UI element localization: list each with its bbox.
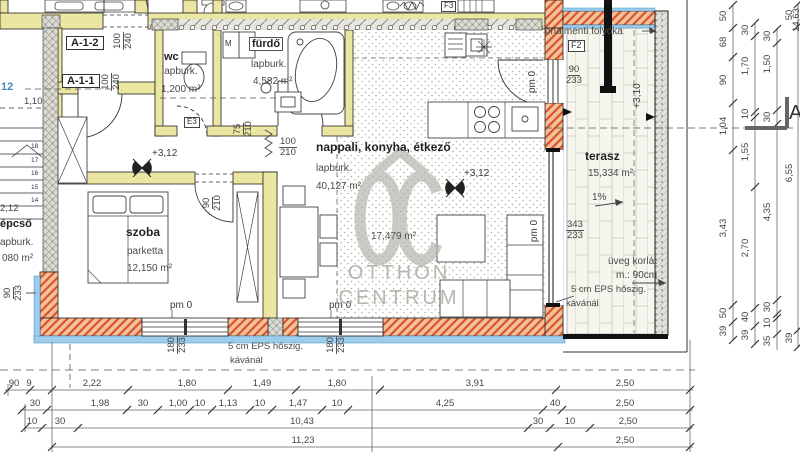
opening-window2: 180233 <box>325 336 348 354</box>
dim-right-c3-4: 30 <box>763 302 773 313</box>
dim-bottom-row3-1: 30 <box>55 417 66 427</box>
dim-right-c2-2: 10 <box>741 109 751 120</box>
dim-right-c4-2: 39 <box>785 333 795 344</box>
eps-note-bottom-2: kávánál <box>230 356 263 366</box>
dim-bottom-row2-10: 40 <box>550 399 561 409</box>
dim-bottom-row3-4: 10 <box>565 417 576 427</box>
stair-step-2: 16 <box>31 170 38 177</box>
dim-right-c2-1: 1,70 <box>741 57 751 76</box>
szoba-furniture <box>58 117 258 302</box>
dim-bottom-row1-5: 1,80 <box>328 379 347 389</box>
furdo-m-label: M <box>225 40 232 49</box>
stair-step-3: 15 <box>31 184 38 191</box>
dim-bottom-row1-7: 2,50 <box>616 379 635 389</box>
dim-bottom-row2-4: 10 <box>195 399 206 409</box>
dim-right-c2-5: 40 <box>741 312 751 323</box>
furdo-fixtures <box>223 32 344 114</box>
level-szoba: +3,12 <box>152 148 177 159</box>
stair-dim: 2,12 <box>0 204 19 214</box>
dim-bottom-row1-3: 1,80 <box>178 379 197 389</box>
dim-bottom-row2-9: 4,25 <box>436 399 455 409</box>
dim-right-c1-3: 1,04 <box>719 117 729 136</box>
stair-step-4: 14 <box>31 197 38 204</box>
furdo-finish: lapburk. <box>251 59 287 70</box>
watermark-text-1: OTTHON <box>348 262 450 284</box>
dim-right-c3-5: 10 <box>763 318 773 329</box>
dim-bottom-row3-3: 30 <box>533 417 544 427</box>
dim-right-c1-5: 50 <box>719 308 729 319</box>
opening-a12: 100240 <box>112 32 135 50</box>
room-label-lepcso: épcső <box>0 218 32 230</box>
dim-bottom-row1-1: 9 <box>26 379 31 389</box>
pm0-window1: pm 0 <box>170 300 192 311</box>
opening-glazing: 343233 <box>566 219 584 242</box>
eps-note-terasz-1: 5 cm EPS hőszig. <box>571 285 646 295</box>
dim-110: 1,10 <box>24 97 43 107</box>
pm0-glazing: pm 0 <box>529 220 540 242</box>
stair-step-0: 18 <box>31 143 38 150</box>
opening-terasz-door: 90233 <box>566 64 582 87</box>
dim-right-c3-0: 30 <box>763 31 773 42</box>
dim-bottom-row1-4: 1,49 <box>253 379 272 389</box>
room-label-furdo: fürdő <box>249 37 283 51</box>
railing-note-2: m.: 90cm <box>616 270 657 281</box>
dim-right-c4-0: 50 <box>785 10 795 21</box>
pm0-terasz-door: pm 0 <box>527 71 538 93</box>
opening-west-window: 90233 <box>2 285 25 301</box>
dim-bottom-row1-6: 3,91 <box>466 379 485 389</box>
dim-right-c2-3: 1,55 <box>741 143 751 162</box>
tag-f2: F2 <box>568 40 585 52</box>
wc-finish: lapburk. <box>162 66 198 77</box>
room-label-wc: wc <box>164 51 179 63</box>
eps-note-terasz-2: kávánál <box>566 299 599 309</box>
dim-right-c1-1: 68 <box>719 37 729 48</box>
szoba-finish: parketta <box>127 246 163 257</box>
dim-right-c2-0: 30 <box>741 25 751 36</box>
tag-f3: F3 <box>441 1 456 12</box>
lepcso-finish: apburk. <box>0 237 33 248</box>
dim-right-c3-1: 1,50 <box>763 55 773 74</box>
dim-bottom-row2-6: 10 <box>255 399 266 409</box>
level-terasz: +3,10 <box>632 83 643 108</box>
opening-furdo: 100210 <box>279 136 297 159</box>
room-label-terasz: terasz <box>585 150 620 163</box>
dim-right-c1-4: 3,43 <box>719 219 729 238</box>
plan-drawing <box>0 0 800 460</box>
terasz-glazing <box>545 60 563 307</box>
dim-right-c3-6: 35 <box>763 336 773 347</box>
dim-right-c1-2: 90 <box>719 75 729 86</box>
terasz-area: 15,334 m² <box>588 168 633 179</box>
dim-bottom-row2-8: 10 <box>332 399 343 409</box>
room-label-nappali: nappali, konyha, étkező <box>316 141 451 154</box>
furdo-area: 4,582 m² <box>253 76 292 87</box>
room-label-szoba: szoba <box>126 226 160 239</box>
opening-wc: 75210 <box>232 121 255 137</box>
dim-bottom-row2-0: 30 <box>30 399 41 409</box>
dim-right-c4-1: 6,55 <box>785 164 795 183</box>
dim-right-c2-6: 39 <box>741 330 751 341</box>
dim-bottom-row4-1: 2,50 <box>616 436 635 446</box>
dim-bottom-row2-7: 1,47 <box>289 399 308 409</box>
dim-bottom-row3-5: 2,50 <box>619 417 638 427</box>
dim-bottom-row3-2: 10,43 <box>290 417 314 427</box>
opening-szoba: 90210 <box>201 195 224 211</box>
dim-bottom-row2-1: 1,98 <box>91 399 110 409</box>
opening-a11: 100240 <box>100 73 123 91</box>
floor-plan: A-1-2 A-1-1 wc lapburk. 1,200 m² M fürdő… <box>0 0 800 460</box>
dim-right-c3-3: 4,35 <box>763 203 773 222</box>
level-nappali: +3,12 <box>464 168 489 179</box>
unit-label-a11: A-1-1 <box>62 74 100 88</box>
dim-bottom-row3-0: 10 <box>27 417 38 427</box>
dim-bottom-row2-5: 1,13 <box>219 399 238 409</box>
wc-area: 1,200 m² <box>161 84 200 95</box>
dim-right-c3-2: 30 <box>763 112 773 123</box>
drain-note: onalmenti folyóka <box>545 26 623 37</box>
tag-e3: E3 <box>184 117 200 128</box>
nappali-finish: lapburk. <box>316 163 352 174</box>
stair-step-1: 17 <box>31 157 38 164</box>
dim-bottom-row2-2: 30 <box>138 399 149 409</box>
eps-note-bottom-1: 5 cm EPS hőszig. <box>228 342 303 352</box>
dim-bottom-row2-3: 1,00 <box>169 399 188 409</box>
terasz-slope: 1% <box>592 192 606 203</box>
grid-label-12: 12 <box>1 81 13 93</box>
dim-right-c1-0: 50 <box>719 11 729 22</box>
nappali-sub-area: 17,479 m² <box>371 231 416 242</box>
dim-bottom-row2-11: 2,50 <box>616 399 635 409</box>
dim-bottom-row4-0: 11,23 <box>291 436 314 446</box>
lepcso-area: 080 m² <box>2 253 33 264</box>
dim-right-c1-6: 39 <box>719 326 729 337</box>
szoba-area: 12,150 m² <box>127 263 172 274</box>
dim-right-c2-4: 2,70 <box>741 239 751 258</box>
nappali-area: 40,127 m² <box>316 181 361 192</box>
watermark-text-2: CENTRUM <box>339 287 460 309</box>
unit-label-a12: A-1-2 <box>66 36 104 50</box>
railing-note-1: üveg korlát <box>608 256 657 267</box>
dim-bottom-row1-2: 2,22 <box>83 379 102 389</box>
dim-bottom-row1-0: 90 <box>9 379 20 389</box>
opening-window1: 180233 <box>166 336 189 354</box>
section-letter: A <box>789 102 800 124</box>
